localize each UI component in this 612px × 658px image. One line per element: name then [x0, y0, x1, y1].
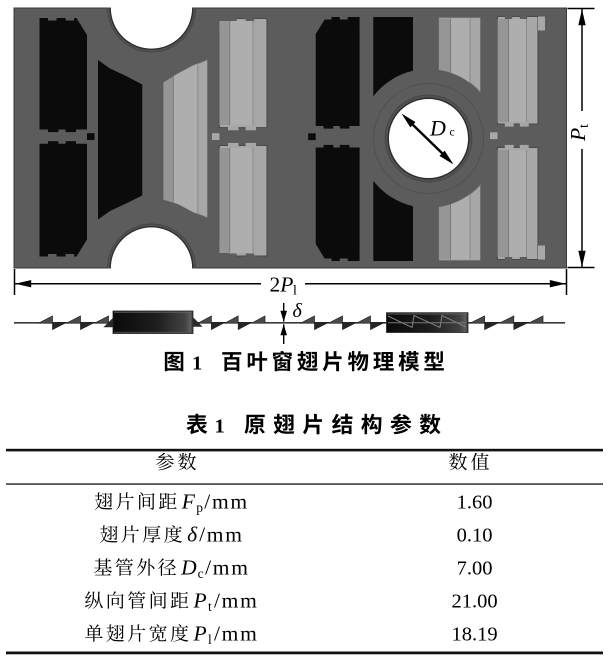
svg-text:P: P: [566, 128, 590, 142]
svg-text:P: P: [193, 621, 207, 645]
svg-text:c: c: [198, 566, 204, 581]
svg-text:δ: δ: [187, 522, 198, 546]
svg-text:/mm: /mm: [204, 489, 249, 513]
svg-text:18.19: 18.19: [451, 623, 497, 645]
svg-text:7.00: 7.00: [457, 557, 493, 579]
svg-text:p: p: [196, 500, 203, 515]
svg-text:D: D: [429, 116, 446, 141]
svg-text:D: D: [180, 555, 197, 579]
svg-text:1: 1: [192, 352, 202, 374]
svg-text:2P: 2P: [270, 273, 294, 297]
svg-text:/mm: /mm: [214, 588, 259, 612]
svg-text:l: l: [208, 632, 212, 647]
svg-text:/mm: /mm: [214, 621, 259, 645]
svg-text:/mm: /mm: [205, 555, 250, 579]
svg-text:/mm: /mm: [199, 522, 244, 546]
svg-text:21.00: 21.00: [451, 590, 497, 612]
svg-text:1: 1: [215, 415, 225, 437]
svg-text:l: l: [293, 284, 297, 299]
svg-text:P: P: [193, 588, 207, 612]
svg-text:F: F: [181, 489, 196, 513]
svg-text:δ: δ: [293, 300, 303, 322]
svg-text:1.60: 1.60: [457, 491, 493, 513]
svg-text:0.10: 0.10: [457, 524, 493, 546]
svg-text:c: c: [450, 127, 455, 139]
svg-text:t: t: [208, 599, 212, 614]
svg-text:t: t: [577, 124, 592, 128]
